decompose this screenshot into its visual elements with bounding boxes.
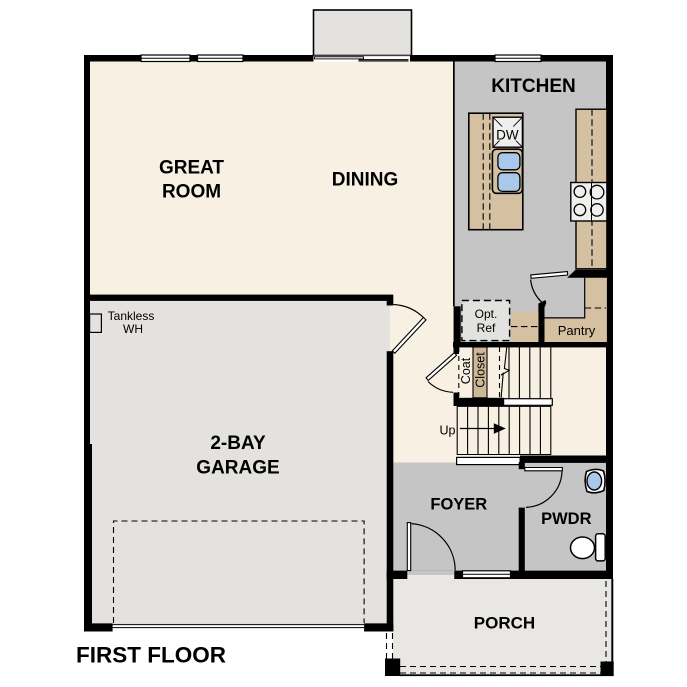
svg-text:FIRST FLOOR: FIRST FLOOR — [76, 643, 226, 668]
svg-text:Pantry: Pantry — [558, 323, 596, 338]
svg-text:Coat: Coat — [459, 357, 473, 384]
svg-text:KITCHEN: KITCHEN — [491, 76, 575, 97]
svg-text:Ref: Ref — [477, 321, 496, 335]
svg-text:FOYER: FOYER — [430, 496, 487, 514]
svg-text:PWDR: PWDR — [541, 510, 591, 528]
svg-text:PORCH: PORCH — [474, 614, 535, 633]
svg-text:WH: WH — [123, 322, 143, 336]
svg-text:ROOM: ROOM — [162, 182, 221, 203]
svg-text:Closet: Closet — [474, 352, 488, 388]
svg-text:GARAGE: GARAGE — [196, 457, 279, 478]
svg-text:Up: Up — [440, 424, 456, 438]
svg-text:DINING: DINING — [332, 170, 399, 191]
svg-text:GREAT: GREAT — [159, 158, 224, 179]
svg-text:Tankless: Tankless — [108, 309, 155, 323]
svg-text:2-BAY: 2-BAY — [210, 433, 266, 454]
svg-text:Opt.: Opt. — [475, 307, 498, 321]
svg-text:DW: DW — [496, 128, 519, 143]
